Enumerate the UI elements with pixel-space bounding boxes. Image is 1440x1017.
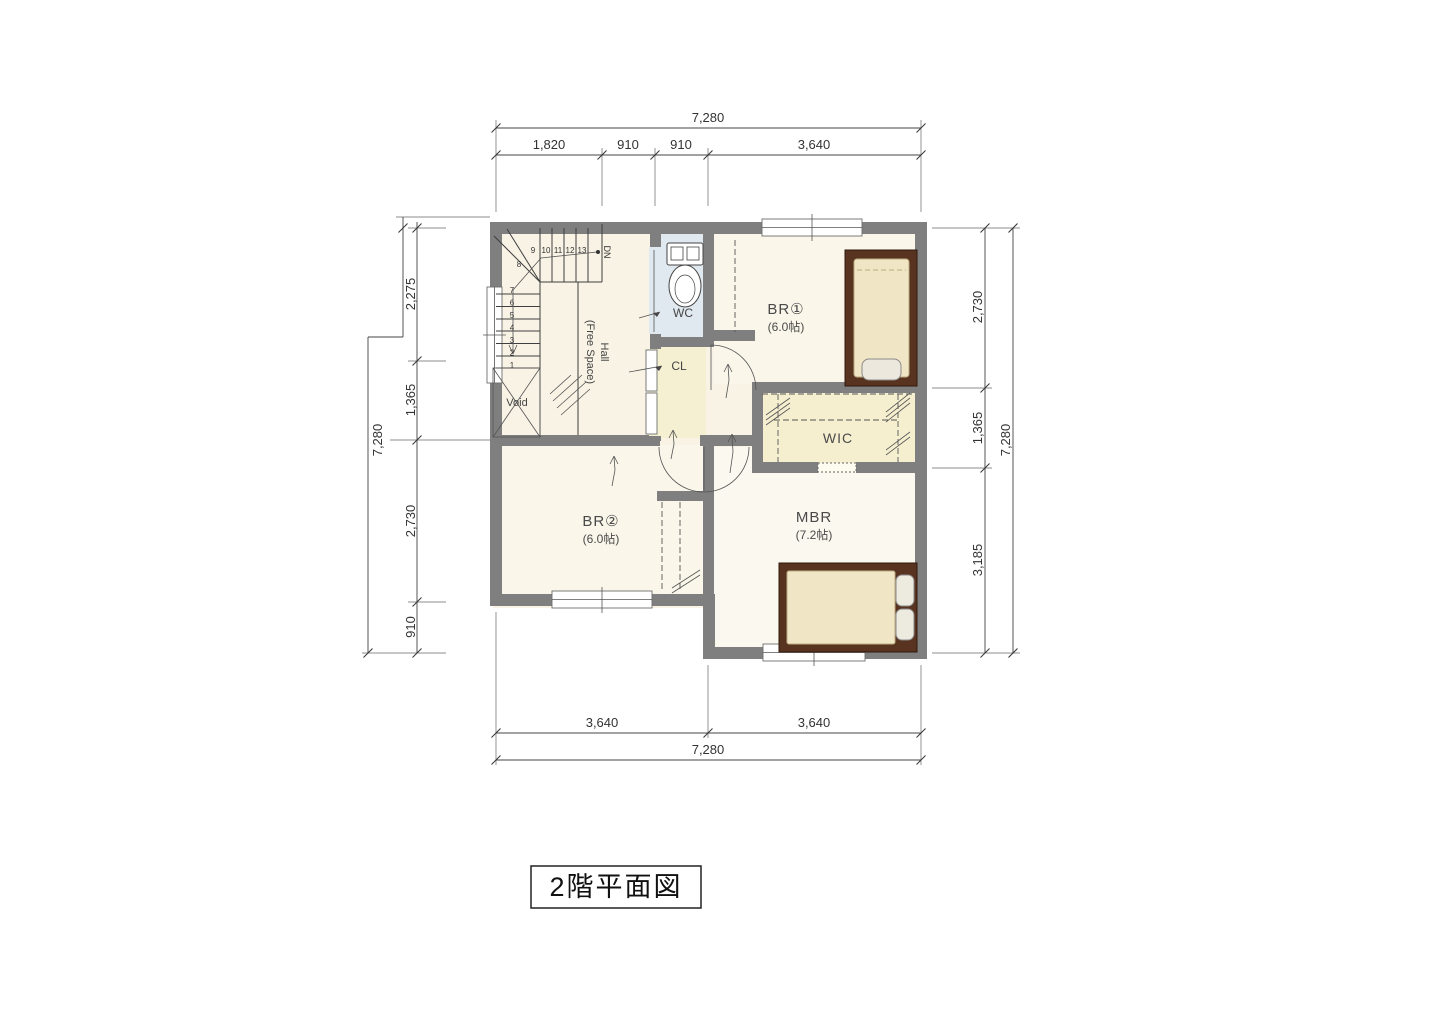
stair-num-9: 9 — [531, 246, 536, 255]
page-title: 2階平面図 — [549, 872, 682, 902]
wc-label: WC — [673, 306, 693, 320]
dim-bottom-seg-0: 3,640 — [586, 715, 619, 730]
hall-sublabel: (Free Space) — [584, 320, 596, 384]
toilet — [667, 243, 703, 307]
stair-num-5: 5 — [510, 311, 515, 320]
dim-top-seg-2: 910 — [670, 137, 692, 152]
dimension-left: 7,280 2,275 1,365 2,730 910 — [362, 217, 490, 658]
stair-start-dot — [596, 250, 600, 254]
dim-left-seg-1: 1,365 — [403, 384, 418, 417]
room-wic-floor — [758, 390, 918, 465]
dim-right-seg-2: 3,185 — [970, 544, 985, 577]
dimension-right: 2,730 1,365 3,185 7,280 — [932, 224, 1020, 658]
dim-top-seg-1: 910 — [617, 137, 639, 152]
wic-label: WIC — [823, 430, 853, 446]
stair-num-1: 1 — [510, 361, 515, 370]
stair-num-13: 13 — [578, 246, 587, 255]
dim-left-seg-0: 2,275 — [403, 278, 418, 311]
dim-bottom-total: 7,280 — [692, 742, 725, 757]
wall-wic-left — [752, 382, 763, 473]
stair-num-4: 4 — [510, 324, 515, 333]
dim-top-total: 7,280 — [692, 110, 725, 125]
pillow — [896, 575, 914, 606]
br1-label: BR① — [767, 301, 804, 318]
title-block: 2階平面図 — [531, 866, 701, 908]
wall-exterior-left — [490, 222, 502, 606]
stair-num-3: 3 — [510, 336, 515, 345]
window-br2-bottom — [552, 587, 652, 613]
dim-left-seg-2: 2,730 — [403, 505, 418, 538]
wall-wic-bottom-left — [752, 462, 818, 473]
hall-label: Hall — [598, 343, 610, 362]
mbr-label: MBR — [796, 509, 832, 526]
dim-top-seg-0: 1,820 — [533, 137, 566, 152]
br1-size: (6.0帖) — [768, 319, 805, 334]
wc-door-opening — [649, 247, 662, 334]
mbr-size: (7.2帖) — [796, 527, 833, 542]
stair-num-8: 8 — [517, 260, 522, 269]
wic-opening — [818, 463, 856, 472]
wall-wic-bottom-right — [856, 462, 927, 473]
dim-right-seg-1: 1,365 — [970, 412, 985, 445]
dim-bottom-seg-1: 3,640 — [798, 715, 831, 730]
wall-br2-mbr — [703, 435, 714, 594]
stair-num-2: 2 — [510, 349, 515, 358]
br2-size: (6.0帖) — [583, 531, 620, 546]
wall-wc-br1 — [703, 228, 714, 336]
stair-num-6: 6 — [510, 299, 515, 308]
pillow — [862, 359, 901, 380]
wall-br1-stub — [703, 330, 755, 341]
void-label: Void — [506, 397, 527, 409]
floor-plan-page: 7,280 1,820 910 910 3,640 3,640 3,640 7,… — [0, 0, 1440, 1017]
pillow — [896, 609, 914, 640]
dimension-top: 7,280 1,820 910 910 3,640 — [492, 110, 926, 212]
dim-right-total: 7,280 — [998, 424, 1013, 457]
stair-num-11: 11 — [554, 246, 563, 255]
dim-right-seg-0: 2,730 — [970, 291, 985, 324]
stair-num-10: 10 — [542, 246, 551, 255]
floor-plan-drawing: 7,280 1,820 910 910 3,640 3,640 3,640 7,… — [0, 0, 1440, 1017]
cl-label: CL — [671, 359, 687, 373]
bed-mbr — [779, 563, 917, 652]
bed-br1 — [845, 250, 917, 386]
wall-br2-closet-stub — [657, 491, 714, 501]
dim-top-seg-3: 3,640 — [798, 137, 831, 152]
stair-num-12: 12 — [566, 246, 575, 255]
dim-left-total: 7,280 — [370, 424, 385, 457]
br2-label: BR② — [582, 513, 619, 530]
stair-num-7: 7 — [510, 286, 515, 295]
dim-left-seg-3: 910 — [403, 616, 418, 638]
stair-dn-label: DN — [602, 246, 612, 259]
